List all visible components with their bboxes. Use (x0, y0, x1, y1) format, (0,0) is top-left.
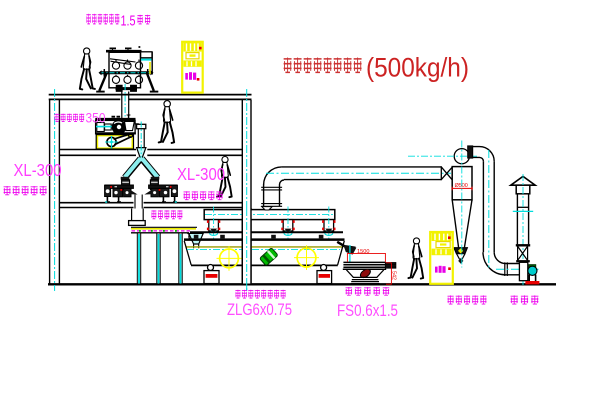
svg-text:FS0.6x1.5: FS0.6x1.5 (337, 301, 398, 320)
svg-text:Ø500: Ø500 (455, 183, 468, 189)
svg-text:542: 542 (391, 271, 397, 280)
svg-text:1.5: 1.5 (121, 13, 136, 30)
svg-text:XL-300: XL-300 (177, 164, 225, 184)
svg-text:350: 350 (86, 111, 106, 126)
svg-text:XL-300: XL-300 (14, 160, 62, 180)
svg-text:1500: 1500 (357, 249, 369, 255)
svg-text:ZLG6x0.75: ZLG6x0.75 (227, 300, 292, 319)
svg-text:(500kg/h): (500kg/h) (366, 53, 469, 83)
